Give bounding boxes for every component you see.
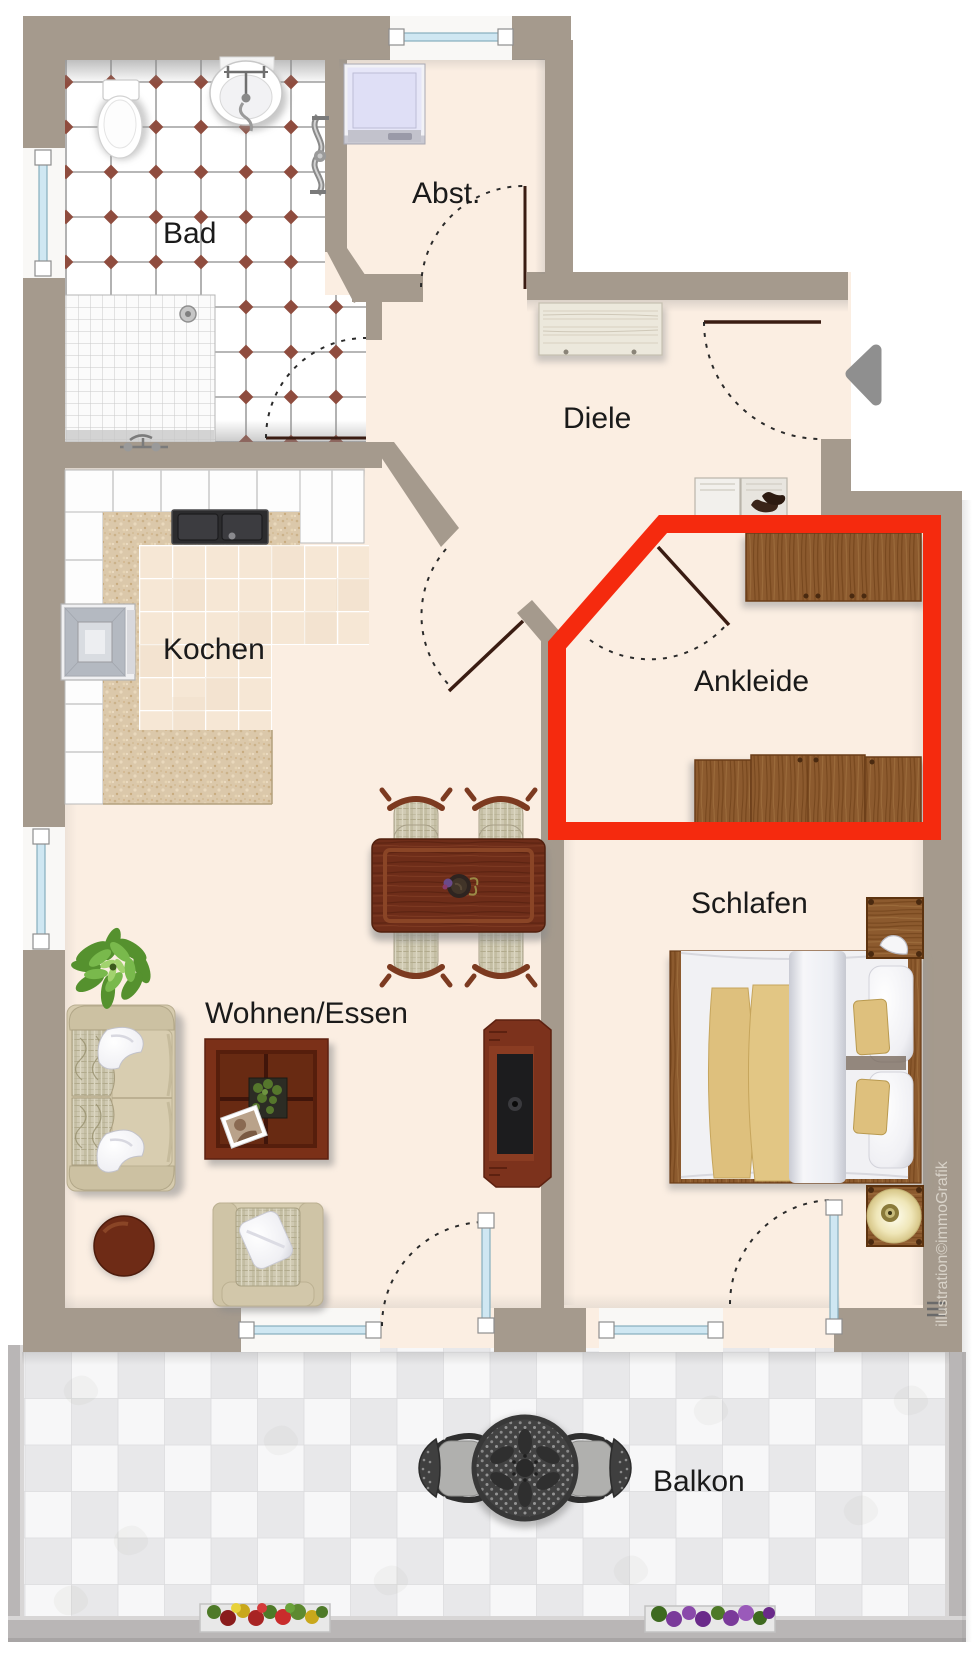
svg-text:illustration©immoGrafik: illustration©immoGrafik (934, 1160, 951, 1327)
svg-text:Abst.: Abst. (412, 177, 480, 210)
svg-text:Bad: Bad (163, 217, 216, 250)
svg-text:Ankleide: Ankleide (694, 665, 809, 698)
svg-text:Schlafen: Schlafen (691, 887, 808, 920)
svg-text:Balkon: Balkon (653, 1465, 745, 1498)
svg-text:Kochen: Kochen (163, 633, 265, 666)
svg-text:Wohnen/Essen: Wohnen/Essen (205, 997, 408, 1030)
svg-text:Diele: Diele (563, 402, 631, 435)
